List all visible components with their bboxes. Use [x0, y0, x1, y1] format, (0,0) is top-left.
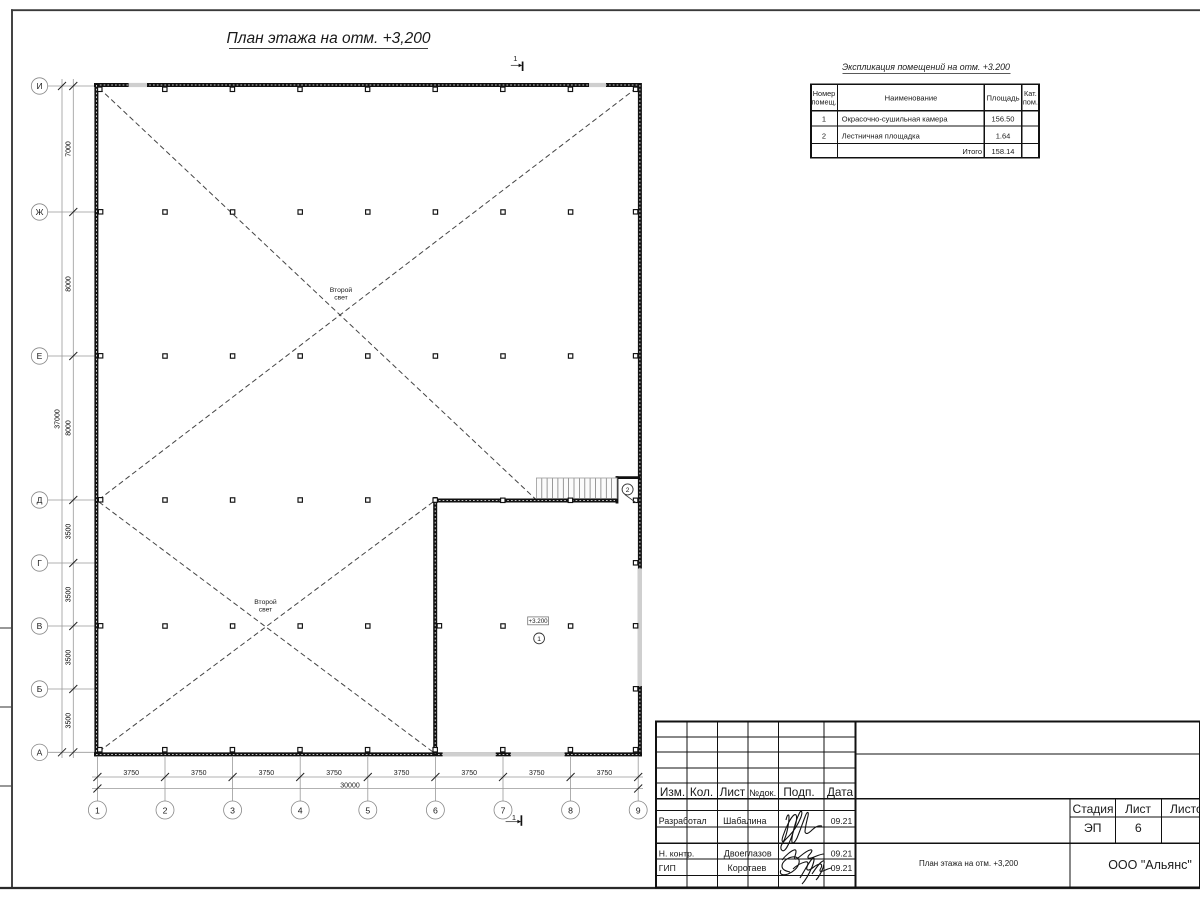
svg-text:3750: 3750: [259, 770, 275, 777]
svg-text:свет: свет: [259, 607, 273, 614]
svg-text:Площадь: Площадь: [986, 94, 1019, 103]
svg-text:3750: 3750: [123, 770, 139, 777]
svg-text:ООО "Альянс": ООО "Альянс": [1108, 858, 1192, 872]
svg-text:2: 2: [822, 132, 826, 141]
svg-text:План этажа на отм. +3,200: План этажа на отм. +3,200: [919, 859, 1019, 868]
svg-text:3500: 3500: [66, 524, 73, 540]
svg-text:Шабалина: Шабалина: [723, 816, 766, 826]
svg-text:Н. контр.: Н. контр.: [659, 848, 694, 858]
svg-text:4: 4: [298, 805, 303, 815]
svg-text:3750: 3750: [529, 770, 545, 777]
svg-text:Г: Г: [37, 558, 42, 568]
svg-text:Ж: Ж: [36, 207, 44, 217]
svg-text:1: 1: [537, 636, 541, 643]
svg-text:Второй: Второй: [330, 286, 353, 294]
svg-text:3500: 3500: [66, 650, 73, 666]
svg-text:3: 3: [230, 805, 235, 815]
svg-text:№док.: №док.: [749, 788, 776, 798]
svg-text:Двоеглазов: Двоеглазов: [724, 848, 772, 858]
svg-text:Экспликация помещений на отм.: Экспликация помещений на отм. +3.200: [842, 62, 1010, 72]
svg-text:Окрасочно-сушильная камера: Окрасочно-сушильная камера: [842, 115, 949, 124]
svg-text:8000: 8000: [66, 276, 73, 292]
svg-text:3500: 3500: [66, 587, 73, 603]
svg-text:Лестничная площадка: Лестничная площадка: [842, 132, 921, 141]
svg-text:+3.200: +3.200: [529, 618, 549, 625]
svg-text:1: 1: [513, 54, 517, 63]
svg-text:30000: 30000: [340, 782, 360, 789]
svg-text:Стадия: Стадия: [1073, 802, 1114, 816]
svg-text:Изм.: Изм.: [660, 785, 685, 799]
svg-text:Наименование: Наименование: [885, 94, 938, 103]
svg-text:3750: 3750: [326, 770, 342, 777]
svg-text:8: 8: [568, 805, 573, 815]
svg-text:свет: свет: [334, 295, 348, 302]
svg-text:3750: 3750: [191, 770, 207, 777]
svg-text:6: 6: [1135, 821, 1142, 835]
svg-text:Листов: Листов: [1170, 802, 1200, 816]
svg-text:7: 7: [501, 805, 506, 815]
svg-text:1: 1: [822, 115, 826, 124]
svg-text:6: 6: [433, 805, 438, 815]
svg-text:158.14: 158.14: [992, 147, 1015, 156]
svg-text:1: 1: [95, 805, 100, 815]
svg-text:3750: 3750: [394, 770, 410, 777]
svg-text:8000: 8000: [66, 420, 73, 436]
svg-text:1: 1: [512, 813, 516, 822]
svg-text:Лист: Лист: [1125, 802, 1152, 816]
svg-text:Д: Д: [37, 495, 43, 505]
svg-text:И: И: [36, 81, 42, 91]
svg-text:2: 2: [163, 805, 168, 815]
svg-text:В: В: [37, 621, 43, 631]
svg-text:37000: 37000: [55, 409, 62, 429]
svg-text:09.21: 09.21: [831, 863, 853, 873]
svg-text:ЭП: ЭП: [1084, 821, 1102, 835]
svg-text:09.21: 09.21: [831, 848, 853, 858]
svg-text:Лист: Лист: [720, 785, 746, 799]
svg-text:3750: 3750: [461, 770, 477, 777]
svg-text:пом.: пом.: [1023, 97, 1038, 106]
svg-text:3750: 3750: [597, 770, 613, 777]
svg-text:Дата: Дата: [827, 785, 854, 799]
svg-text:Кол.: Кол.: [690, 785, 713, 799]
svg-text:А: А: [37, 747, 43, 757]
svg-text:помещ.: помещ.: [811, 97, 836, 106]
svg-text:Б: Б: [37, 684, 43, 694]
svg-text:9: 9: [636, 805, 641, 815]
svg-text:2: 2: [626, 487, 630, 494]
svg-text:5: 5: [365, 805, 370, 815]
svg-text:1.64: 1.64: [996, 132, 1011, 141]
svg-text:Подп.: Подп.: [783, 785, 814, 799]
svg-text:Итого: Итого: [962, 147, 982, 156]
svg-text:Разработал: Разработал: [659, 816, 707, 826]
svg-text:7000: 7000: [66, 141, 73, 157]
svg-text:Второй: Второй: [254, 598, 277, 606]
svg-text:Е: Е: [37, 351, 43, 361]
svg-text:3500: 3500: [66, 713, 73, 729]
svg-text:09.21: 09.21: [831, 816, 853, 826]
svg-text:План этажа на отм. +3,200: План этажа на отм. +3,200: [227, 30, 431, 47]
svg-text:Коротаев: Коротаев: [727, 863, 766, 873]
svg-text:156.50: 156.50: [992, 115, 1015, 124]
svg-text:ГИП: ГИП: [659, 863, 676, 873]
